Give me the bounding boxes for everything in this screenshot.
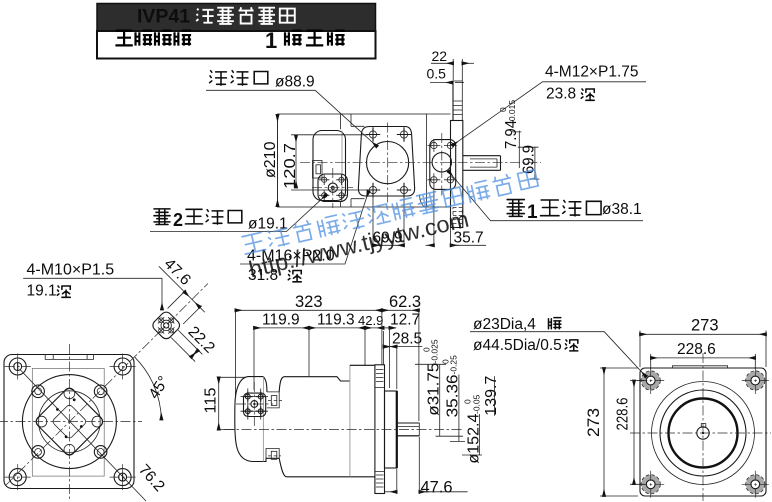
svg-text:4-M10×P1.5: 4-M10×P1.5	[27, 262, 115, 279]
svg-text:42.9: 42.9	[358, 313, 383, 328]
svg-text:228.6: 228.6	[677, 341, 716, 358]
svg-text:ø38.1: ø38.1	[602, 201, 642, 218]
svg-text:2: 2	[173, 210, 183, 230]
svg-text:-0.25: -0.25	[449, 355, 459, 375]
svg-text:22: 22	[432, 48, 448, 64]
svg-text:76.2: 76.2	[135, 461, 168, 495]
svg-text:4-M12×P1.75: 4-M12×P1.75	[545, 64, 639, 81]
svg-text:228.6: 228.6	[615, 398, 632, 431]
svg-text:47.6: 47.6	[421, 479, 453, 497]
svg-text:119.9: 119.9	[262, 312, 300, 329]
svg-text:22.2: 22.2	[185, 323, 218, 356]
svg-text:323: 323	[295, 293, 323, 311]
svg-text:273: 273	[585, 408, 603, 437]
svg-text:-0.025: -0.025	[430, 339, 440, 363]
svg-text:ø152.4: ø152.4	[466, 413, 483, 463]
svg-text:119.3: 119.3	[317, 312, 355, 329]
svg-text:115: 115	[203, 388, 220, 414]
svg-text:-0.05: -0.05	[472, 394, 482, 414]
svg-text:19.1: 19.1	[27, 283, 57, 300]
svg-text:ø88.9: ø88.9	[275, 74, 315, 91]
svg-text:12.7: 12.7	[390, 312, 420, 329]
svg-text:ø23Dia,4: ø23Dia,4	[473, 316, 536, 333]
svg-text:1: 1	[265, 28, 277, 53]
svg-text:62.3: 62.3	[389, 293, 421, 311]
svg-text:120.7: 120.7	[282, 143, 299, 189]
svg-text:23.8: 23.8	[546, 86, 576, 103]
svg-text:45°: 45°	[146, 373, 173, 402]
svg-text:273: 273	[691, 317, 719, 335]
svg-text:IVP41: IVP41	[137, 6, 190, 28]
svg-text:28.5: 28.5	[392, 331, 422, 348]
svg-text:139.7: 139.7	[483, 376, 500, 416]
svg-text:-0.015: -0.015	[507, 100, 517, 124]
svg-text:0.5: 0.5	[427, 66, 447, 82]
svg-text:ø44.5Dia/0.5: ø44.5Dia/0.5	[473, 337, 562, 354]
svg-text:1: 1	[527, 202, 538, 223]
svg-text:ø210: ø210	[262, 141, 279, 178]
svg-text:47.6: 47.6	[161, 255, 194, 288]
